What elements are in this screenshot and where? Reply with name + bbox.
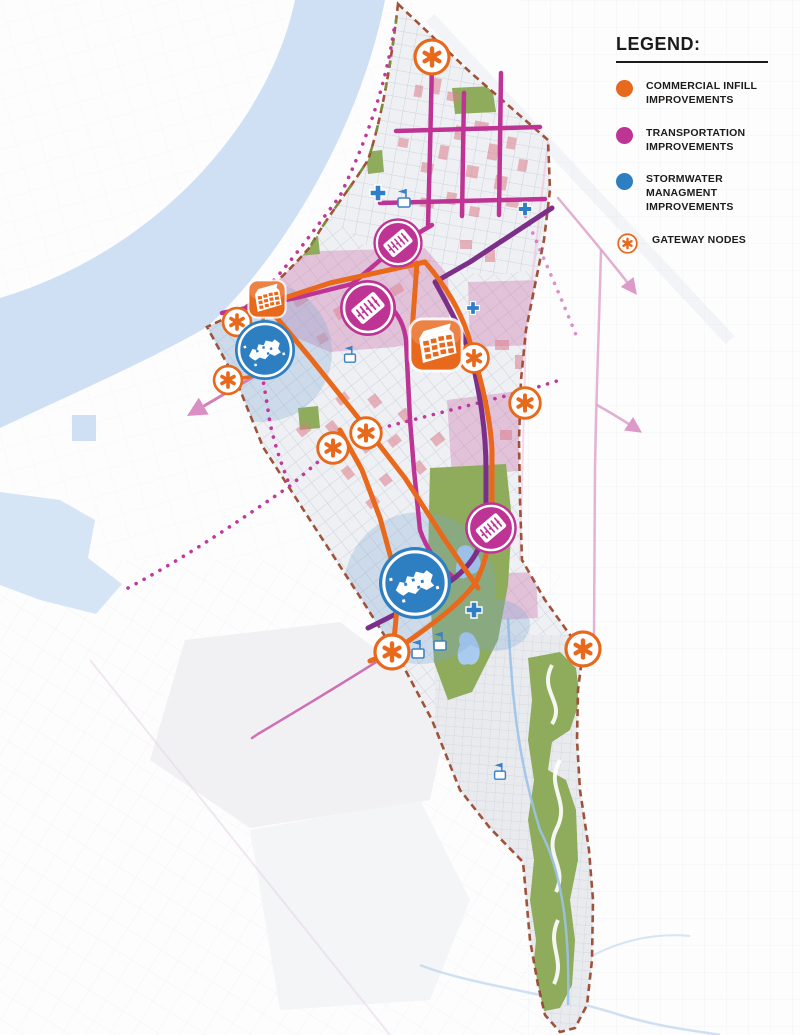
commercial-dot-icon	[616, 80, 633, 97]
gateway-node-icon	[616, 232, 639, 255]
gateway-node-icon[interactable]	[351, 418, 382, 449]
legend-title: LEGEND:	[616, 34, 796, 55]
gateway-node-icon[interactable]	[510, 388, 541, 419]
gateway-node-icon[interactable]	[214, 366, 242, 394]
transportation-dot-icon	[616, 127, 633, 144]
commercial-infill-icon[interactable]	[410, 319, 462, 371]
planning-map-canvas: LEGEND: COMMERCIAL INFILL IMPROVEMENTS T…	[0, 0, 800, 1035]
legend-item-stormwater: STORMWATER MANAGMENT IMPROVEMENTS	[616, 172, 796, 215]
gateway-node-icon[interactable]	[415, 40, 449, 74]
legend-item-gateway: GATEWAY NODES	[616, 233, 796, 255]
legend-underline	[616, 61, 768, 63]
legend-item-label: TRANSPORTATION IMPROVEMENTS	[646, 126, 745, 155]
transportation-improvement-icon[interactable]	[465, 502, 517, 554]
stormwater-dot-icon	[616, 173, 633, 190]
legend-item-label: COMMERCIAL INFILL IMPROVEMENTS	[646, 79, 757, 108]
gateway-node-icon[interactable]	[375, 635, 409, 669]
stormwater-improvement-icon[interactable]	[379, 547, 451, 619]
commercial-infill-icon[interactable]	[249, 281, 286, 318]
legend-item-commercial: COMMERCIAL INFILL IMPROVEMENTS	[616, 79, 796, 108]
legend-panel: LEGEND: COMMERCIAL INFILL IMPROVEMENTS T…	[616, 34, 796, 273]
gateway-node-icon[interactable]	[566, 632, 600, 666]
transportation-improvement-icon[interactable]	[340, 280, 396, 336]
river-inlet	[72, 415, 96, 441]
gateway-node-icon[interactable]	[460, 344, 489, 373]
legend-item-label: STORMWATER MANAGMENT IMPROVEMENTS	[646, 172, 796, 215]
stormwater-improvement-icon[interactable]	[235, 320, 295, 380]
gateway-node-icon[interactable]	[318, 433, 349, 464]
legend-item-label: GATEWAY NODES	[652, 233, 746, 248]
legend-item-transportation: TRANSPORTATION IMPROVEMENTS	[616, 126, 796, 155]
transportation-improvement-icon[interactable]	[373, 218, 422, 267]
